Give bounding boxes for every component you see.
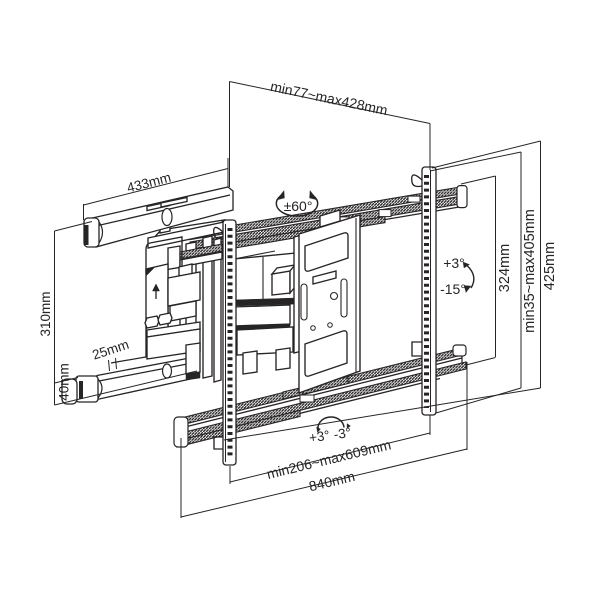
- svg-text:-3°: -3°: [333, 425, 352, 442]
- svg-text:-15°: -15°: [440, 281, 466, 297]
- svg-text:+3°: +3°: [443, 255, 465, 271]
- svg-text:+3°: +3°: [308, 428, 331, 446]
- svg-text:425mm: 425mm: [542, 242, 558, 290]
- svg-text:324mm: 324mm: [497, 244, 513, 292]
- svg-text:310mm: 310mm: [38, 291, 53, 336]
- svg-text:min35~max405mm: min35~max405mm: [522, 209, 538, 333]
- svg-text:40mm: 40mm: [57, 363, 72, 401]
- svg-text:±60°: ±60°: [284, 198, 313, 214]
